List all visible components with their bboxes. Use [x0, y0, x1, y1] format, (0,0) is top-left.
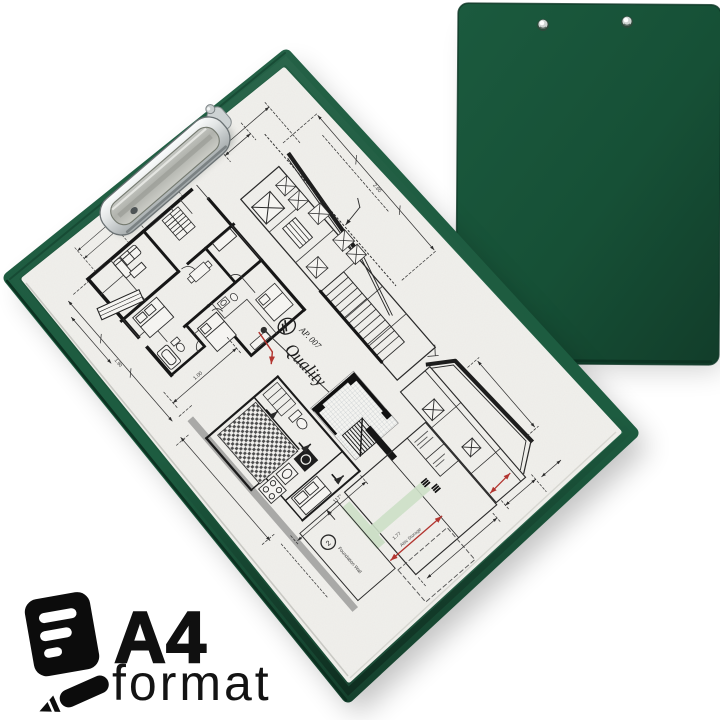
svg-text:format: format — [112, 655, 272, 711]
